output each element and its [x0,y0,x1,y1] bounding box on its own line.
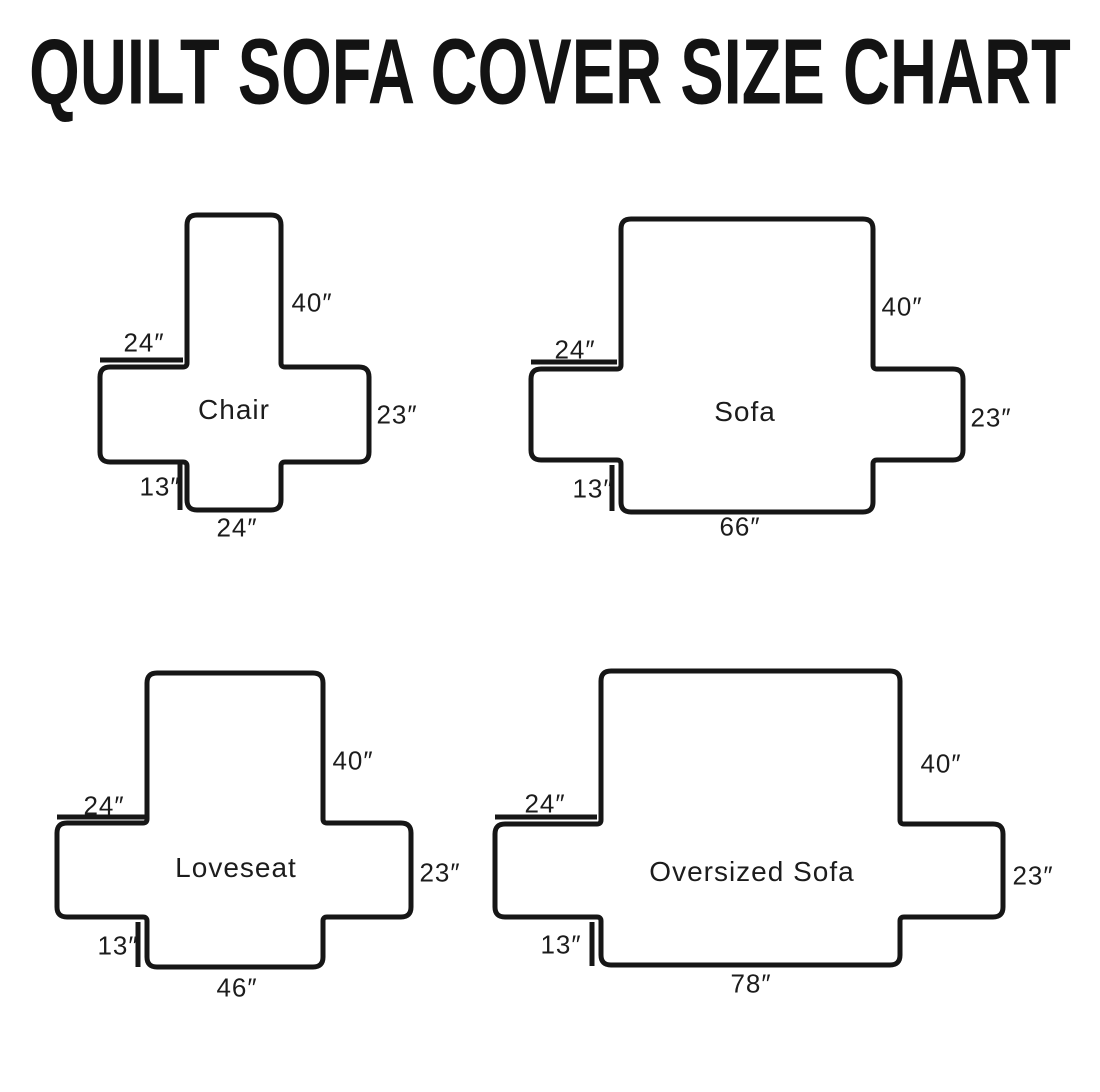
loveseat-left-arm-label: 24″ [83,791,124,822]
chair-bottom-width-label: 24″ [216,513,257,544]
loveseat-right-arm-label: 23″ [419,858,460,889]
oversized-left-arm-label: 24″ [524,789,565,820]
loveseat-name-label: Loveseat [175,852,297,884]
oversized-name-label: Oversized Sofa [649,856,854,888]
loveseat-front-skirt-label: 13″ [97,931,138,962]
chair-back-height-label: 40″ [291,288,332,319]
loveseat-bottom-width-label: 46″ [216,973,257,1004]
size-chart-page: QUILT SOFA COVER SIZE CHART 40″ 24″ Chai… [0,0,1100,1092]
cover-outline-canvas [0,0,1100,1092]
chair-left-arm-label: 24″ [123,328,164,359]
sofa-bottom-width-label: 66″ [719,512,760,543]
sofa-cover-outline [531,219,963,512]
oversized-right-arm-label: 23″ [1012,861,1053,892]
sofa-right-arm-label: 23″ [970,403,1011,434]
oversized-bottom-width-label: 78″ [730,969,771,1000]
sofa-left-arm-label: 24″ [554,335,595,366]
chair-front-skirt-label: 13″ [139,472,180,503]
sofa-name-label: Sofa [714,396,776,428]
chair-name-label: Chair [198,394,270,426]
loveseat-back-height-label: 40″ [332,746,373,777]
oversized-back-height-label: 40″ [920,749,961,780]
chair-right-arm-label: 23″ [376,400,417,431]
sofa-back-height-label: 40″ [881,292,922,323]
oversized-front-skirt-label: 13″ [540,930,581,961]
sofa-front-skirt-label: 13″ [572,474,613,505]
